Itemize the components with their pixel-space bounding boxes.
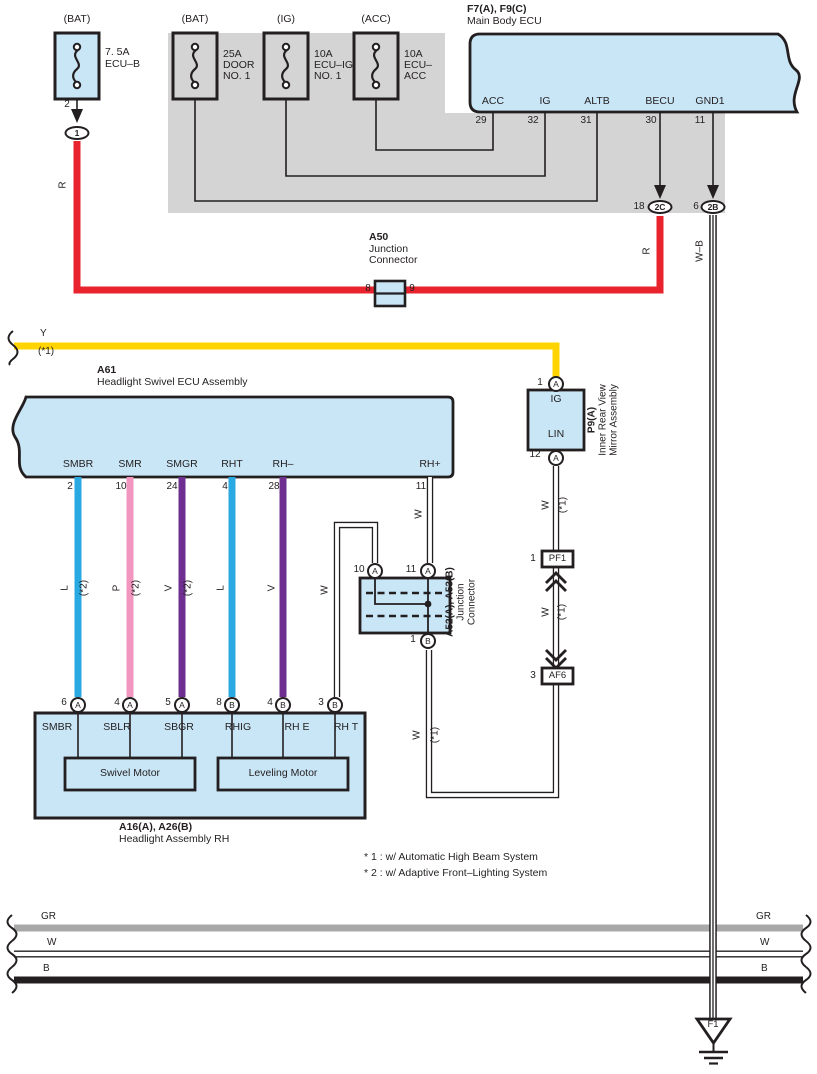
p9-id: P9(A): [587, 407, 598, 433]
fuse3-name2: NO. 1: [314, 71, 341, 83]
ground-point-f1: F1: [707, 1020, 718, 1030]
a61-pin-rhplus: RH+: [419, 459, 440, 471]
ecu-pin-ig: IG: [539, 96, 550, 108]
a52-id: A52(A), A53(B): [445, 567, 456, 637]
wire-code-v1: V: [164, 585, 175, 592]
p9-pin-ig: IG: [550, 394, 561, 406]
a52-pin-num-10: 10: [353, 564, 364, 575]
bus-b-label-right: B: [761, 963, 768, 974]
wire-ref-y: (*1): [38, 346, 54, 357]
bus-w-label-left: W: [47, 937, 56, 948]
yellow-wire-y: [14, 346, 556, 377]
a52-name-2: Connector: [467, 579, 478, 625]
wire-code-l2: L: [216, 585, 227, 591]
a61-pin-num-24: 24: [166, 481, 177, 492]
fuse2-name2: NO. 1: [223, 71, 250, 83]
ecu-pin-becu: BECU: [645, 96, 674, 108]
a50-name-2: Connector: [369, 255, 417, 267]
fuse3-terminal-label: (IG): [277, 14, 295, 26]
a50-pin-8: 8: [365, 283, 371, 294]
fuse4-name2: ACC: [404, 71, 426, 83]
main-body-ecu-box: [470, 34, 799, 112]
ecu-pin-gnd1: GND1: [695, 96, 724, 108]
headlight-id: A16(A), A26(B): [119, 822, 192, 834]
ecu-pin-num-31: 31: [580, 115, 591, 126]
hl-ring-3b: B: [327, 697, 343, 713]
hl-pin-num-4a: 4: [114, 697, 120, 708]
hl-pin-num-5: 5: [165, 697, 171, 708]
hl-ring-8b: B: [224, 697, 240, 713]
diagram-line-art: [0, 0, 817, 1074]
wiring-diagram: (BAT) (BAT) (IG) (ACC) 7. 5A ECU–B 25A D…: [0, 0, 817, 1074]
a61-pin-smgr: SMGR: [166, 459, 198, 471]
hl-pin-rht: RH T: [334, 722, 358, 734]
fuse1-pin-number: 2: [64, 99, 70, 110]
fuse2-terminal-label: (BAT): [182, 14, 209, 26]
hl-pin-num-4b: 4: [267, 697, 273, 708]
wire-code-w-loop: W: [320, 585, 331, 594]
a61-pin-num-2: 2: [67, 481, 73, 492]
a52-name-1: Junction: [456, 583, 467, 620]
wire-code-r2: R: [642, 247, 653, 254]
wire-ref-w-low: (*1): [430, 727, 441, 743]
wire-code-w-p9: W: [541, 500, 552, 509]
bus-w-label-right: W: [760, 937, 769, 948]
p9-pin-num-1: 1: [537, 377, 543, 388]
a61-id: A61: [97, 365, 116, 377]
connector-oval-2c: 2C: [648, 200, 673, 214]
hl-pin-sblr: SBLR: [103, 722, 130, 734]
wire-code-y: Y: [40, 328, 47, 339]
hl-ring-5a: A: [174, 697, 190, 713]
a61-name: Headlight Swivel ECU Assembly: [97, 377, 248, 389]
wire-code-wb: W–B: [695, 240, 706, 262]
hl-ring-4b: B: [275, 697, 291, 713]
footnote-1: * 1 : w/ Automatic High Beam System: [364, 852, 538, 864]
a61-pin-rht: RHT: [221, 459, 243, 471]
p9-pin-lin: LIN: [548, 429, 564, 441]
bus-gr-label-left: GR: [41, 911, 56, 922]
hl-ring-4a: A: [122, 697, 138, 713]
a50-id: A50: [369, 232, 388, 244]
hl-pin-smbr: SMBR: [42, 722, 72, 734]
bus-b-label-left: B: [43, 963, 50, 974]
p9-ring-top: A: [548, 376, 564, 392]
wire-ref-v1: (*2): [183, 580, 194, 596]
ecu-pin-num-30: 30: [645, 115, 656, 126]
a61-pin-rhminus: RH–: [272, 459, 293, 471]
ecu-name: Main Body ECU: [467, 16, 542, 28]
hl-pin-sbgr: SBGR: [164, 722, 194, 734]
swivel-motor-label: Swivel Motor: [100, 768, 160, 780]
hl-pin-num-3: 3: [318, 697, 324, 708]
p9-ring-bottom: A: [548, 450, 564, 466]
conn-2c-pin-number: 18: [633, 201, 644, 212]
conn-2b-pin-number: 6: [693, 201, 699, 212]
pf1-label: PF1: [549, 554, 566, 564]
a52-pin-num-1: 1: [410, 634, 416, 645]
connector-oval-1: 1: [65, 126, 90, 140]
wire-code-w-mid: W: [541, 607, 552, 616]
ecu-pin-num-29: 29: [475, 115, 486, 126]
hl-pin-rhe: RH E: [284, 722, 309, 734]
af6-pin-number: 3: [530, 670, 536, 681]
hl-ring-6a: A: [70, 697, 86, 713]
wire-af6-junction-white: [429, 650, 556, 795]
pf1-pin-number: 1: [530, 553, 536, 564]
ecu-id: F7(A), F9(C): [467, 4, 527, 16]
wire-ref-w-mid: (*1): [557, 604, 568, 620]
a52-junction-dot: [425, 601, 432, 608]
a61-pin-num-11: 11: [416, 481, 426, 492]
connector-oval-2b: 2B: [701, 200, 726, 214]
hl-pin-rhig: RHIG: [225, 722, 251, 734]
a52-a53-box: [360, 578, 450, 633]
headlight-name: Headlight Assembly RH: [119, 834, 229, 846]
bus-gr-label-right: GR: [756, 911, 771, 922]
break-squiggle-icon: [9, 331, 18, 365]
a61-pin-num-4: 4: [222, 481, 228, 492]
fuse1-name: ECU–B: [105, 59, 140, 71]
leveling-motor-label: Leveling Motor: [249, 768, 318, 780]
a52-ring-10a: A: [367, 563, 383, 579]
wire-code-v2: V: [267, 585, 278, 592]
p9-pin-num-12: 12: [529, 449, 540, 460]
wire-code-w-low: W: [412, 730, 423, 739]
ecu-pin-num-32: 32: [527, 115, 538, 126]
wire-code-p: P: [112, 585, 123, 592]
hl-pin-num-6: 6: [61, 697, 67, 708]
wire-ref-l1: (*2): [79, 580, 90, 596]
a61-pin-smr: SMR: [118, 459, 141, 471]
p9-name-2: Mirror Assembly: [609, 384, 620, 456]
a52-ring-1b: B: [420, 633, 436, 649]
a61-pin-smbr: SMBR: [63, 459, 93, 471]
ecu-pin-acc: ACC: [482, 96, 504, 108]
a50-pin-9: 9: [409, 283, 415, 294]
ecu-pin-num-11: 11: [695, 115, 705, 126]
a52-ring-11a: A: [420, 563, 436, 579]
wire-code-r1: R: [58, 181, 69, 188]
footnote-2: * 2 : w/ Adaptive Front–Lighting System: [364, 868, 547, 880]
fuse4-terminal-label: (ACC): [361, 14, 390, 26]
wire-code-l1: L: [60, 585, 71, 591]
wire-code-w-rhplus: W: [414, 509, 425, 518]
wire-ref-w-p9: (*1): [558, 497, 569, 513]
a52-pin-num-11: 11: [406, 564, 416, 575]
a61-pin-num-10: 10: [115, 481, 126, 492]
hl-pin-num-8: 8: [216, 697, 222, 708]
af6-label: AF6: [549, 671, 566, 681]
fuse1-rating: 7. 5A: [105, 47, 130, 59]
p9-name-1: Inner Rear View: [598, 384, 609, 456]
fuse1-terminal-label: (BAT): [64, 14, 91, 26]
ecu-pin-altb: ALTB: [584, 96, 609, 108]
a61-pin-num-28: 28: [268, 481, 279, 492]
wire-ref-p: (*2): [131, 580, 142, 596]
arrow-down-icon: [71, 109, 83, 123]
